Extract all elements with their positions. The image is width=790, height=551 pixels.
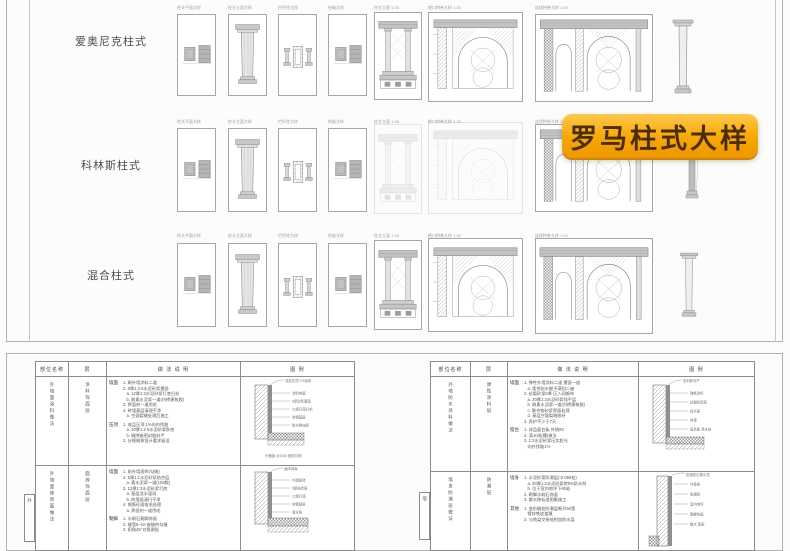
svg-text:弹性涂料: 弹性涂料 [690,391,704,396]
cell-legend-detail: 成品压顶 1%找坡 涂料饰面 6厚砂浆罩面 12厚打底扫毛 砖墙基层 防水附加层… [241,377,354,465]
svg-text:滴水线: 滴水线 [292,510,303,515]
caption-label: 栏杆柱大样 [278,233,298,238]
caption-label: 柱础大样 [328,119,344,124]
cad-screenshot: { "badge": { "label": "罗马柱式大样" }, "color… [0,0,790,544]
table-header-row: 部位名称 层 做 法 说 明 图 例 [431,362,754,377]
cell-method: 墙面 1. 刷外墙涂料二道2. 6厚1:2.5水泥砂浆罩面 a. 12厚1:3水… [107,377,241,465]
caption-label: 栏杆柱大样 [278,119,298,124]
svg-text:成品压顶 1%找坡: 成品压顶 1%找坡 [285,378,312,383]
panel-corinthian-column-elevation [228,128,267,212]
detail-drawing-wall-section: 防潮层位置示意 外墙身 防潮层 室内地坪 勒脚饰面 散水 垫层 [639,472,754,551]
table-row-group: 墙身防潮层做法 防潮层 墙身 1. 水泥砂浆防潮层(-0.060处) a. 20… [431,472,754,551]
captions-row-3: 柱头平面大样柱头立面大样栏杆柱大样柱础大样柱式立面 1:25檐口拱券大样 1:2… [0,233,790,239]
header-cell-method: 做 法 说 明 [508,362,639,376]
svg-text:室内地坪: 室内地坪 [690,502,704,507]
sheet-inner-border-right [775,0,776,342]
spec-line: 3. 散水按标准图集施工 [524,497,638,503]
header-cell-location: 部位名称 [431,362,471,376]
cell-legend-detail: 面砖饰面 外墙面砖 5厚结合层 12厚打底 砖墙基层 滴水线 [241,466,354,551]
svg-text:防水附加层: 防水附加层 [292,423,310,428]
panel-corinthian-portico-faded [374,124,422,214]
panel-composite-arch [428,238,523,332]
spec-line: a. 空鼓裂缝处理后施工 [123,413,240,419]
panel-ionic-column-elevation [228,14,267,96]
caption-label: 柱头平面大样 [177,5,201,10]
spec-line: a. 界面剂一道甩毛 [123,508,240,514]
svg-text:12厚打底: 12厚打底 [292,494,307,499]
svg-text:6厚砂浆罩面: 6厚砂浆罩面 [292,399,311,404]
caption-label: 柱头平面大样 [177,233,201,238]
panel-ionic-base-detail [328,14,367,96]
table-row-group: 外墙面涂料做法 涂料饰面层 墙面 1. 刷外墙涂料二道2. 6厚1:2.5水泥砂… [36,377,354,466]
caption-label: 栏杆柱大样 [278,5,298,10]
svg-text:外墙身: 外墙身 [690,482,701,487]
captions-row-1: 柱头平面大样柱头立面大样栏杆柱大样柱础大样柱式立面 1:25檐口拱券大样 1:2… [0,5,790,11]
caption-label: 檐口拱券大样 1:20 [428,5,461,10]
panel-ionic-portico [374,12,422,100]
cell-layer: 涂料饰面层 [69,377,107,465]
caption-label: 柱础大样 [328,233,344,238]
cell-legend-detail: 密封胶封严 弹性涂料 抗裂砂浆层 找平层 砖墙 窗台板 滴水线 [639,377,754,471]
svg-text:找平层: 找平层 [690,409,701,414]
svg-text:涂料饰面: 涂料饰面 [292,391,306,396]
table-header-row: 部位名称 层 做 法 说 明 图 例 [36,362,354,377]
sheet-inner-border-left [29,0,30,342]
svg-text:散水 垫层: 散水 垫层 [690,522,705,527]
detail-drawing-coating-wall: 密封胶封严 弹性涂料 抗裂砂浆层 找平层 砖墙 窗台板 滴水线 [639,377,754,471]
caption-label: 柱头立面大样 [228,119,252,124]
caption-label: 柱头立面大样 [228,5,252,10]
svg-text:勒脚饰面: 勒脚饰面 [690,512,704,517]
panel-corinthian-capital-plan [177,128,216,212]
header-cell-location: 部位名称 [36,362,69,376]
svg-text:砖墙: 砖墙 [690,418,697,423]
caption-label: 柱头平面大样 [177,119,201,124]
cell-legend-detail: 防潮层位置示意 外墙身 防潮层 室内地坪 勒脚饰面 散水 垫层 [639,472,754,551]
cell-location: 外墙面砖饰面做法 [36,466,69,551]
cell-location: 外墙防水涂料做法 [431,377,471,471]
cell-layer: 弹性涂料层 [471,377,508,471]
title-badge-label: 罗马柱式大样 [570,117,750,156]
svg-text:抗裂砂浆层: 抗裂砂浆层 [690,400,708,405]
panel-composite-base-detail [328,243,367,327]
cell-location: 墙身防潮层做法 [431,472,471,551]
table-row-group: 外墙防水涂料做法 弹性涂料层 墙面 1. 弹性外墙涂料二道 罩面一道 a. 柔性… [431,377,754,472]
panel-composite-capital-plan [177,243,216,327]
cell-location: 外墙面涂料做法 [36,377,69,465]
panel-composite-double-arch [535,238,653,334]
row-label-ionic: 爱奥尼克柱式 [56,33,166,49]
svg-text:12厚打底扫毛: 12厚打底扫毛 [292,407,313,412]
panel-ionic-arch [428,12,523,102]
caption-label: 柱式立面 1:25 [374,233,399,238]
header-cell-legend: 图 例 [639,362,754,376]
cell-layer: 面砖饰面层 [69,466,107,551]
panel-composite-balusters [278,243,317,327]
spec-line: 3. 养护不少于7天 [524,419,638,425]
cell-method: 墙身 1. 水泥砂浆防潮层(-0.060处) a. 20厚1:2水泥砂浆掺5%防… [508,472,639,551]
svg-text:砖墙基层: 砖墙基层 [292,502,306,507]
drawing-composite-column-free [676,244,702,328]
svg-text:密封胶封严: 密封胶封严 [683,378,701,383]
panel-corinthian-base-detail [328,128,367,212]
svg-text:分格缝 @1500 嵌密封胶: 分格缝 @1500 嵌密封胶 [265,453,302,458]
panel-corinthian-arch-faded [428,122,523,214]
row-label-corinthian: 科林斯柱式 [56,157,166,173]
header-cell-layer: 层 [471,362,508,376]
spec-line: 2. 与地梁交接处附加防水层 [524,517,638,523]
header-cell-method: 做 法 说 明 [107,362,241,376]
caption-label: 柱式立面 1:25 [374,5,399,10]
notes-table-left: 部位名称 层 做 法 说 明 图 例 外墙面涂料做法 涂料饰面层 墙面 1. 刷… [35,361,355,551]
spec-line: 向外找坡1% [524,444,638,450]
spec-line: 3. 阳角45°对角割贴 [123,527,240,533]
spec-line: 2. 分格缝按设计要求留设 [123,438,240,444]
row-group-tab-left: 外 [24,494,35,542]
panel-ionic-double-arch [535,14,653,102]
row-label-composite: 混合柱式 [56,267,166,283]
panel-composite-portico [374,240,422,330]
caption-label: 连续拱券大样 1:20 [535,5,568,10]
notes-table-right: 部位名称 层 做 法 说 明 图 例 外墙防水涂料做法 弹性涂料层 墙面 1. … [430,361,755,551]
cell-method: 墙面 1. 弹性外墙涂料二道 罩面一道 a. 柔性耐水腻子满刮二遍2. 抗裂砂浆… [508,377,639,471]
svg-text:面砖饰面: 面砖饰面 [284,466,298,471]
svg-text:窗台板 滴水线: 窗台板 滴水线 [690,427,712,432]
drawing-ionic-column-free [668,16,698,100]
caption-label: 柱础大样 [328,5,344,10]
svg-text:外墙面砖: 外墙面砖 [292,478,306,483]
panel-ionic-balusters [278,14,317,96]
detail-drawing-tile-wall: 面砖饰面 外墙面砖 5厚结合层 12厚打底 砖墙基层 滴水线 [241,466,354,551]
title-badge: 罗马柱式大样 [562,114,758,158]
table-row-group: 外墙面砖饰面做法 面砖饰面层 墙面 1. 贴外墙面砖(勾缝)2. 5厚1:1水泥… [36,466,354,551]
caption-label: 柱头立面大样 [228,233,252,238]
panel-composite-column-elevation [228,243,267,327]
row-group-tab-right: 墙 [419,492,430,540]
svg-text:防潮层位置示意: 防潮层位置示意 [686,472,710,477]
cell-method: 墙面 1. 贴外墙面砖(勾缝)2. 5厚1:1水泥砂浆结合层 a. 素水泥浆一道… [107,466,241,551]
panel-corinthian-balusters [278,128,317,212]
svg-text:砖墙基层: 砖墙基层 [292,415,306,420]
panel-ionic-capital-plan [177,14,216,96]
header-cell-layer: 层 [69,362,107,376]
cell-layer: 防潮层 [471,472,508,551]
detail-drawing-parapet: 成品压顶 1%找坡 涂料饰面 6厚砂浆罩面 12厚打底扫毛 砖墙基层 防水附加层… [241,377,354,465]
header-cell-legend: 图 例 [241,362,354,376]
svg-text:防潮层: 防潮层 [690,492,701,497]
svg-text:5厚结合层: 5厚结合层 [292,486,308,491]
